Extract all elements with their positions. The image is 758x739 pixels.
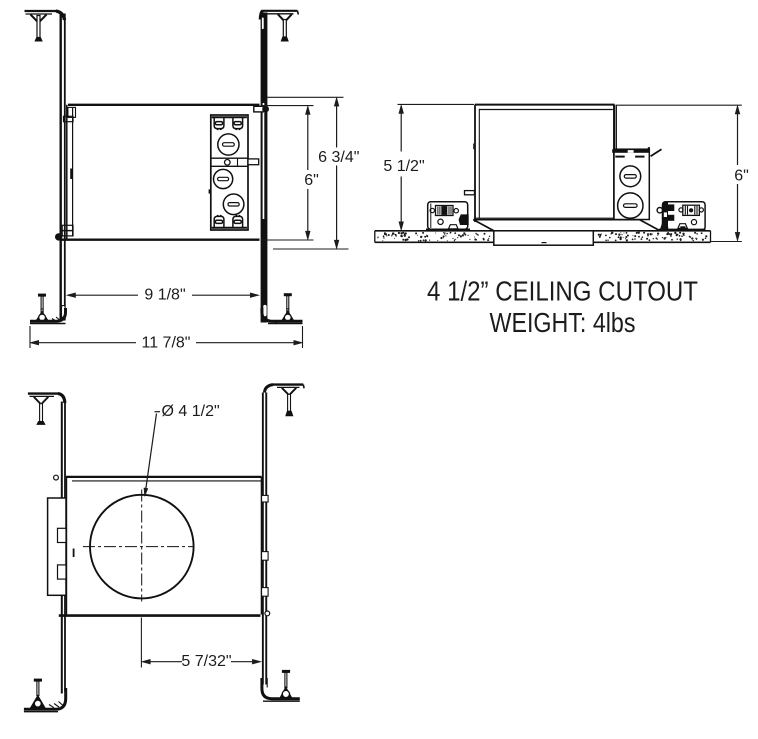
svg-text:6 3/4": 6 3/4" <box>318 149 359 166</box>
svg-text:11 7/8": 11 7/8" <box>142 335 191 352</box>
svg-text:6": 6" <box>304 172 319 189</box>
svg-text:Ø 4 1/2": Ø 4 1/2" <box>162 403 220 420</box>
svg-text:4 1/2” CEILING CUTOUT: 4 1/2” CEILING CUTOUT <box>427 276 698 307</box>
svg-text:5 7/32": 5 7/32" <box>181 653 231 670</box>
svg-text:9 1/8": 9 1/8" <box>144 286 185 303</box>
svg-text:6": 6" <box>734 167 749 184</box>
svg-text:5 1/2": 5 1/2" <box>383 158 424 175</box>
svg-text:WEIGHT: 4lbs: WEIGHT: 4lbs <box>490 307 636 338</box>
